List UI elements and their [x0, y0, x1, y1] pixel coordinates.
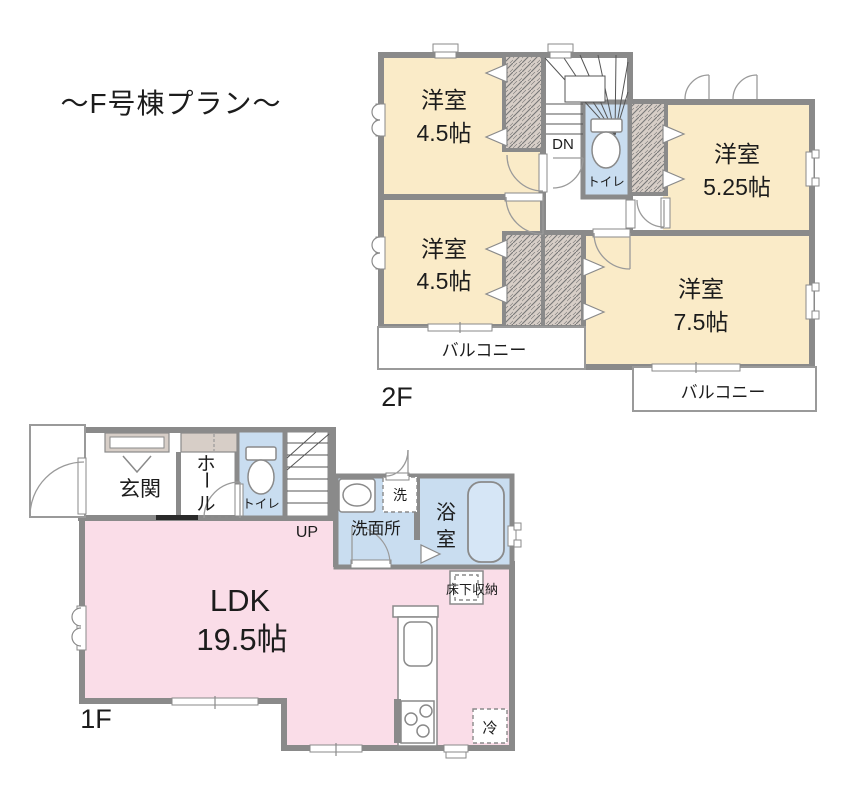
stove-icon [401, 701, 434, 743]
wall-entrance-hall [176, 452, 181, 518]
opening-washroom [351, 560, 391, 568]
room-size: 4.5帖 [417, 120, 472, 146]
balcony-label: バルコニー [681, 383, 766, 402]
shoe-cabinet-front [110, 437, 164, 448]
floor-1f: 玄関 ホ ー ル トイレ UP 洗 洗面所 浴 室 LDK 19.5帖 床下収納… [30, 425, 521, 758]
kitchen-wall-stub [394, 699, 401, 743]
sink-icon [339, 479, 375, 512]
stair-core-2f [565, 76, 605, 102]
opening-room-upper [539, 154, 547, 192]
floor-storage-label: 床下収納 [446, 582, 498, 597]
floor-2f: 洋室 4.5帖 洋室 4.5帖 洋室 5.25帖 洋室 7.5帖 トイレ DN … [372, 44, 819, 412]
window-icon [435, 52, 456, 58]
closet-5_25 [630, 102, 666, 194]
room-size: 4.5帖 [417, 268, 472, 294]
casement-window-icon [685, 75, 757, 99]
room-label: 洋室 [421, 87, 467, 113]
door-arc-service [386, 450, 408, 476]
window-icon [508, 523, 521, 547]
room-label: 洋室 [678, 276, 724, 302]
washer-label: 洗 [393, 487, 407, 503]
opening-service-door [386, 473, 409, 480]
stairs-dn-label: DN [552, 136, 574, 153]
floor-plan-page: ～F号棟プラン～ [0, 0, 848, 800]
toilet-icon-1f [246, 447, 276, 494]
opening-room-7_5 [593, 229, 630, 237]
window-icon [550, 52, 571, 58]
closet-lower-left [504, 233, 543, 327]
fridge-label: 冷 [482, 720, 497, 737]
ldk-label: LDK [210, 583, 271, 618]
toilet-label-1f: トイレ [242, 497, 280, 511]
opening-strip-room [661, 198, 670, 228]
toilet-label-2f: トイレ [587, 175, 625, 189]
closet-7_5 [543, 233, 583, 327]
balcony-label: バルコニー [442, 341, 527, 360]
floor-label-2f: 2F [381, 382, 413, 412]
plan-title: ～F号棟プラン～ [60, 88, 281, 119]
opening-room-lower [505, 193, 543, 201]
bath-label: 室 [436, 528, 456, 551]
hall-label: ー [195, 470, 216, 489]
floor-label-1f: 1F [80, 704, 112, 734]
entrance-label: 玄関 [119, 478, 161, 501]
opening-hall-strip [626, 200, 635, 228]
room-label: 洋室 [714, 141, 760, 167]
washroom-label: 洗面所 [351, 519, 401, 538]
stairs-up-label: UP [296, 524, 318, 541]
toilet-icon-2f [591, 119, 622, 168]
entrance-door-opening [78, 458, 86, 514]
floor-plan-drawing: ～F号棟プラン～ [0, 0, 848, 800]
window-icon [548, 44, 573, 52]
room-size: 7.5帖 [674, 309, 729, 335]
room-label: 洋室 [421, 236, 467, 262]
bath-label: 浴 [436, 501, 456, 524]
closet-upper-left [504, 55, 543, 150]
ldk-size: 19.5帖 [196, 622, 287, 657]
sliding-door-icon [156, 515, 198, 520]
hall-storage [181, 433, 237, 452]
porch [30, 425, 85, 517]
room-size: 5.25帖 [703, 174, 771, 200]
kitchen-sink-icon [404, 622, 432, 666]
hall-label: ル [196, 494, 215, 515]
bathtub-icon [468, 482, 504, 562]
window-icon [433, 44, 458, 52]
